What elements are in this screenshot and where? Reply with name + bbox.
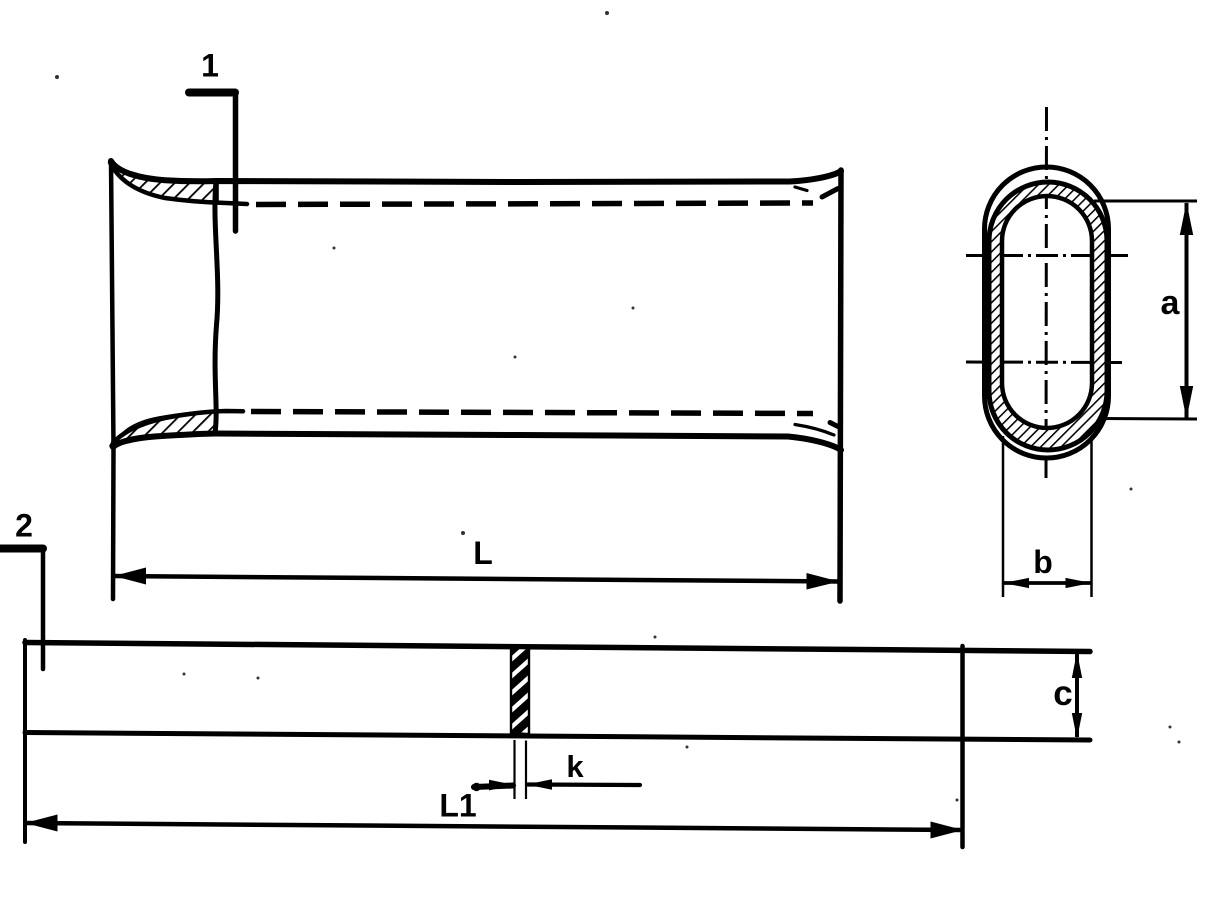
svg-text:2: 2: [15, 508, 33, 544]
svg-text:1: 1: [201, 48, 219, 84]
svg-text:a: a: [1161, 284, 1181, 322]
svg-text:L: L: [473, 535, 493, 571]
svg-text:c: c: [1053, 674, 1072, 713]
svg-text:L1: L1: [439, 788, 476, 824]
svg-text:k: k: [566, 749, 584, 784]
svg-text:b: b: [1033, 544, 1053, 580]
